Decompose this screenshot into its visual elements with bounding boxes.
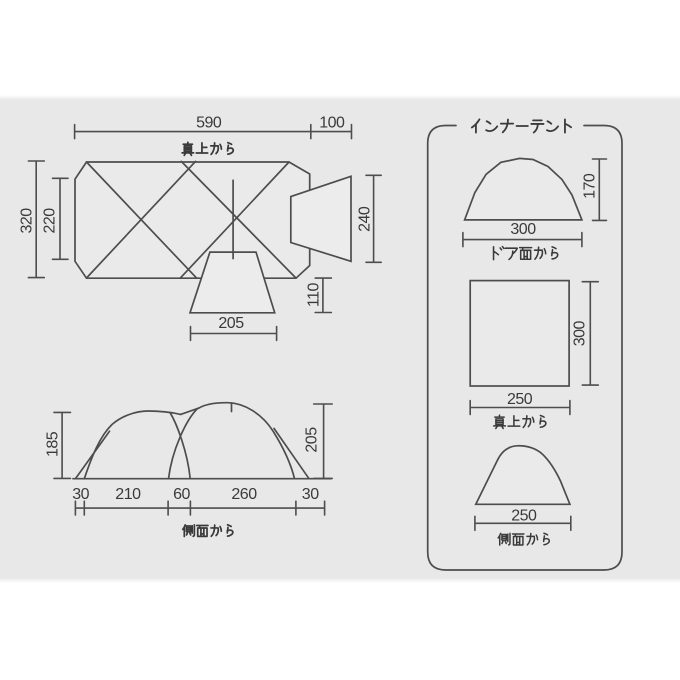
svg-text:110: 110 [305, 282, 322, 307]
svg-text:300: 300 [510, 221, 536, 238]
svg-text:210: 210 [115, 486, 141, 503]
svg-text:205: 205 [304, 427, 321, 453]
svg-text:590: 590 [196, 115, 222, 132]
svg-text:260: 260 [231, 486, 257, 503]
svg-text:250: 250 [511, 507, 537, 524]
svg-text:30: 30 [72, 486, 89, 503]
svg-text:205: 205 [218, 315, 244, 332]
svg-text:240: 240 [356, 206, 373, 232]
svg-text:60: 60 [173, 486, 190, 503]
svg-text:300: 300 [572, 321, 589, 347]
svg-text:185: 185 [45, 431, 62, 457]
svg-text:30: 30 [302, 486, 319, 503]
svg-text:250: 250 [507, 391, 533, 408]
svg-text:220: 220 [41, 208, 58, 234]
svg-text:320: 320 [19, 208, 36, 234]
svg-text:170: 170 [581, 173, 598, 199]
svg-text:100: 100 [319, 115, 345, 132]
